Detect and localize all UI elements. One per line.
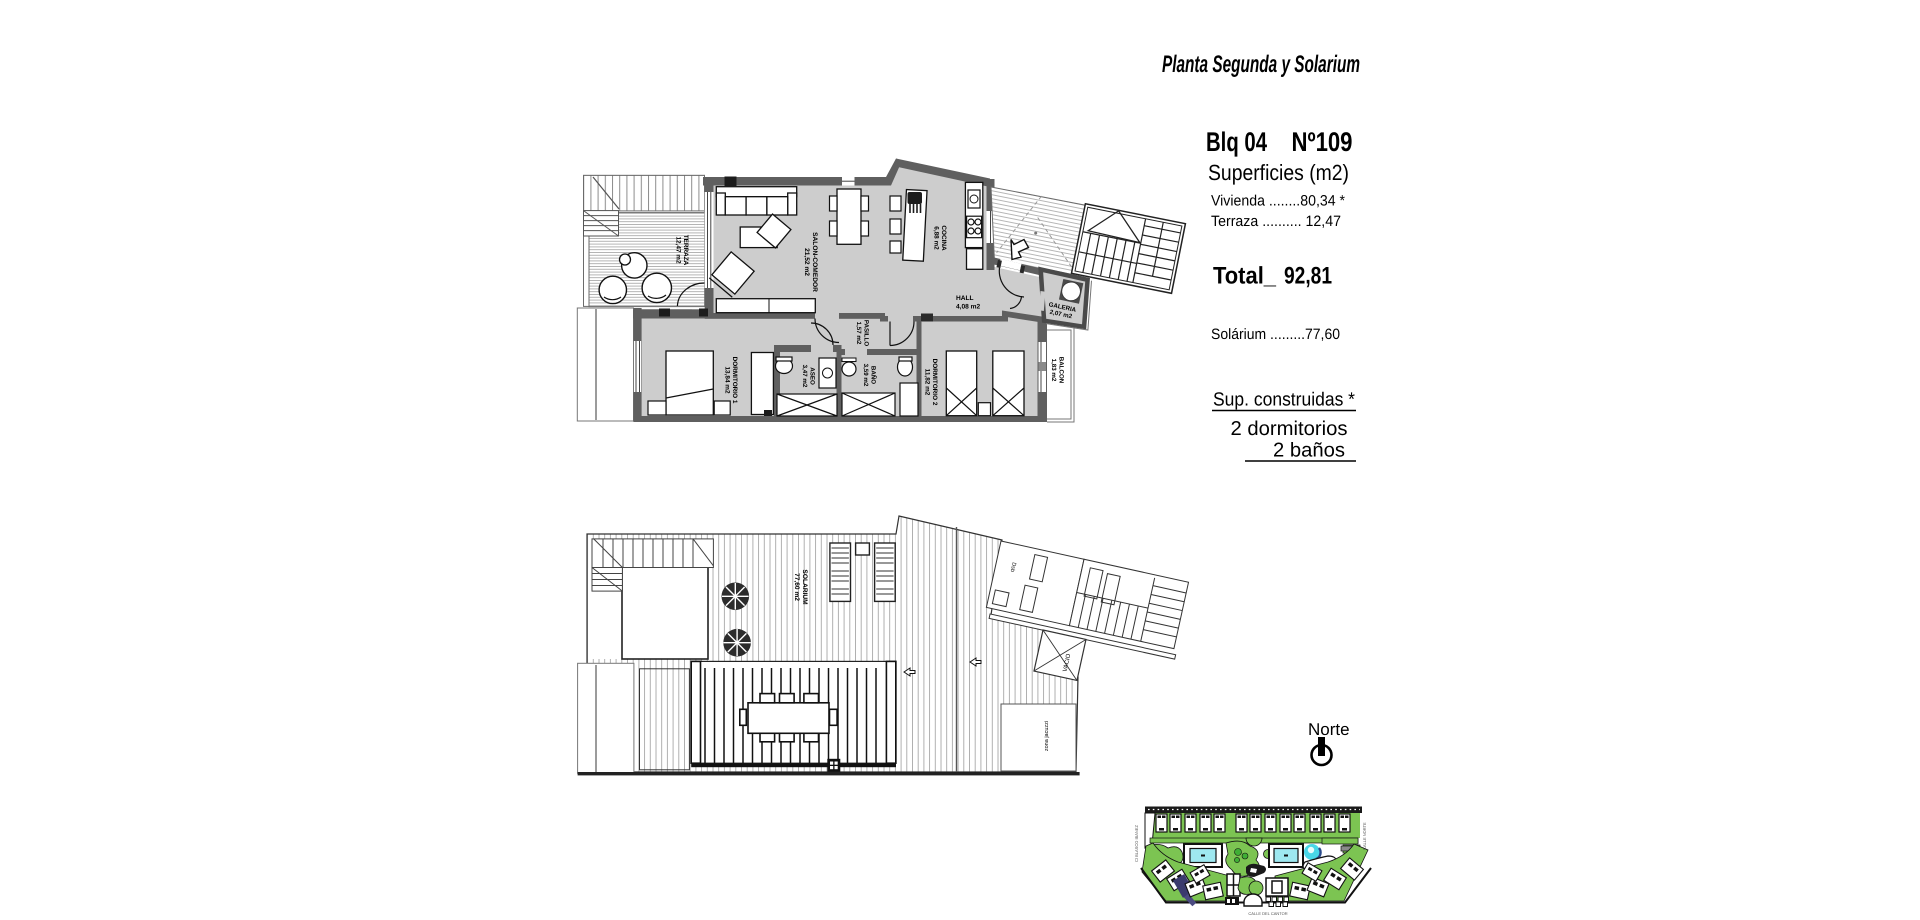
svg-text:DORMITORIO 1: DORMITORIO 1 xyxy=(731,357,738,404)
svg-text:Superficies (m2): Superficies (m2) xyxy=(1208,160,1349,185)
svg-text:BALCON: BALCON xyxy=(1058,357,1065,384)
svg-text:13,84 m2: 13,84 m2 xyxy=(724,366,731,393)
svg-text:PASILLO: PASILLO xyxy=(863,320,870,347)
svg-text:CALLE NORTE: CALLE NORTE xyxy=(1362,822,1367,850)
svg-text:BAÑO: BAÑO xyxy=(870,366,878,384)
svg-text:21,52 m2: 21,52 m2 xyxy=(803,248,810,276)
svg-text:3,59 m2: 3,59 m2 xyxy=(862,364,869,387)
svg-text:1,57 m2: 1,57 m2 xyxy=(855,322,862,345)
svg-text:ASEO: ASEO xyxy=(809,367,816,385)
svg-text:4,08 m2: 4,08 m2 xyxy=(956,304,981,311)
svg-text:Terraza .......... 12,47: Terraza .......... 12,47 xyxy=(1211,213,1341,230)
svg-text:92,81: 92,81 xyxy=(1284,263,1332,290)
svg-text:Solárium .........77,60: Solárium .........77,60 xyxy=(1211,326,1340,343)
svg-text:COCINA: COCINA xyxy=(940,225,947,251)
svg-text:11,82 m2: 11,82 m2 xyxy=(924,369,931,396)
svg-text:Vivienda ........80,34 *: Vivienda ........80,34 * xyxy=(1211,193,1345,210)
svg-text:CALLE DEL CANTOR: CALLE DEL CANTOR xyxy=(1248,911,1287,916)
svg-text:SALON-COMEDOR: SALON-COMEDOR xyxy=(811,232,818,292)
svg-text:zona jacuzzi: zona jacuzzi xyxy=(1044,721,1050,751)
svg-text:12,47 m2: 12,47 m2 xyxy=(675,236,682,263)
svg-text:Total_: Total_ xyxy=(1213,263,1277,290)
svg-text:Sup. construidas *: Sup. construidas * xyxy=(1213,390,1356,411)
svg-text:C/ BLASCO IBANEZ: C/ BLASCO IBANEZ xyxy=(1134,825,1139,862)
svg-text:Planta Segunda y Solarium: Planta Segunda y Solarium xyxy=(1162,51,1360,78)
svg-text:HALL: HALL xyxy=(956,295,974,302)
svg-text:TERRAZA: TERRAZA xyxy=(682,235,689,266)
svg-text:2 baños: 2 baños xyxy=(1273,440,1345,462)
svg-text:1,83 m2: 1,83 m2 xyxy=(1050,359,1057,382)
svg-text:Nº109: Nº109 xyxy=(1292,127,1353,157)
svg-text:6,88 m2: 6,88 m2 xyxy=(933,226,940,250)
svg-text:2 dormitorios: 2 dormitorios xyxy=(1231,418,1348,440)
svg-text:DORMITORIO 2: DORMITORIO 2 xyxy=(931,359,938,406)
svg-text:Blq 04: Blq 04 xyxy=(1206,127,1267,157)
svg-text:SOLARIUM: SOLARIUM xyxy=(801,569,808,605)
svg-text:Norte: Norte xyxy=(1308,720,1350,739)
svg-text:3,47 m2: 3,47 m2 xyxy=(801,365,808,388)
svg-text:77,60 m2: 77,60 m2 xyxy=(793,573,800,601)
